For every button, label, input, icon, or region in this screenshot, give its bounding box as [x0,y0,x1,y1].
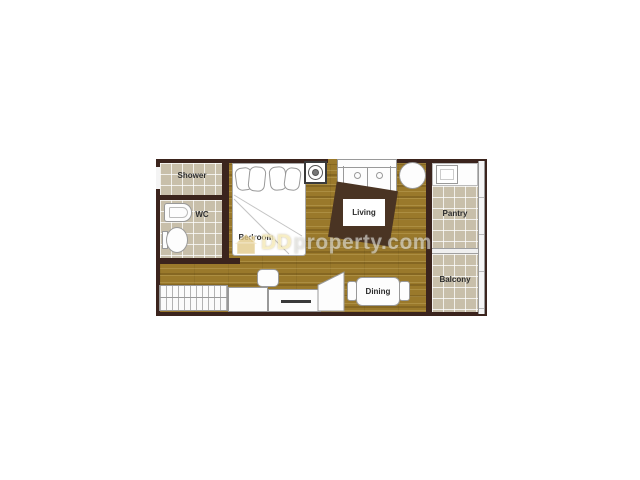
sofa-armrest-right [390,166,396,191]
wall-bathroom-bottom [156,258,240,264]
room-label-shower: Shower [162,172,222,180]
washing-machine-icon [304,161,327,184]
desk [228,287,268,312]
bathroom-window [156,167,160,189]
floorplan-image: Shower WC Bedroom [0,0,640,480]
open-cabinet [317,271,345,312]
tv-icon [281,300,311,303]
dining-chair-right [399,281,410,301]
stool [257,269,279,287]
sofa-backrest [338,160,396,168]
sofa-pillow-left [354,172,361,179]
bed [232,163,306,256]
pantry-sink [436,165,458,184]
pantry-counter [432,163,478,186]
room-label-dining: Dining [366,288,391,296]
room-label-living: Living [352,209,376,217]
sofa-pillow-right [376,172,383,179]
tv-console [268,289,321,312]
round-table [399,162,426,189]
room-label-balcony: Balcony [432,276,478,284]
wardrobe [159,285,228,311]
room-label-pantry: Pantry [432,210,478,218]
dining-table: Dining [356,277,400,306]
room-label-bedroom: Bedroom [226,234,286,242]
balcony-railing [478,161,485,314]
pantry-sink-bowl [440,169,454,180]
room-label-wc: WC [172,211,232,219]
floorplan: Shower WC Bedroom [156,159,487,316]
washing-machine-drum-center [312,169,319,176]
living-label-box: Living [343,199,385,226]
toilet-icon [166,227,188,253]
